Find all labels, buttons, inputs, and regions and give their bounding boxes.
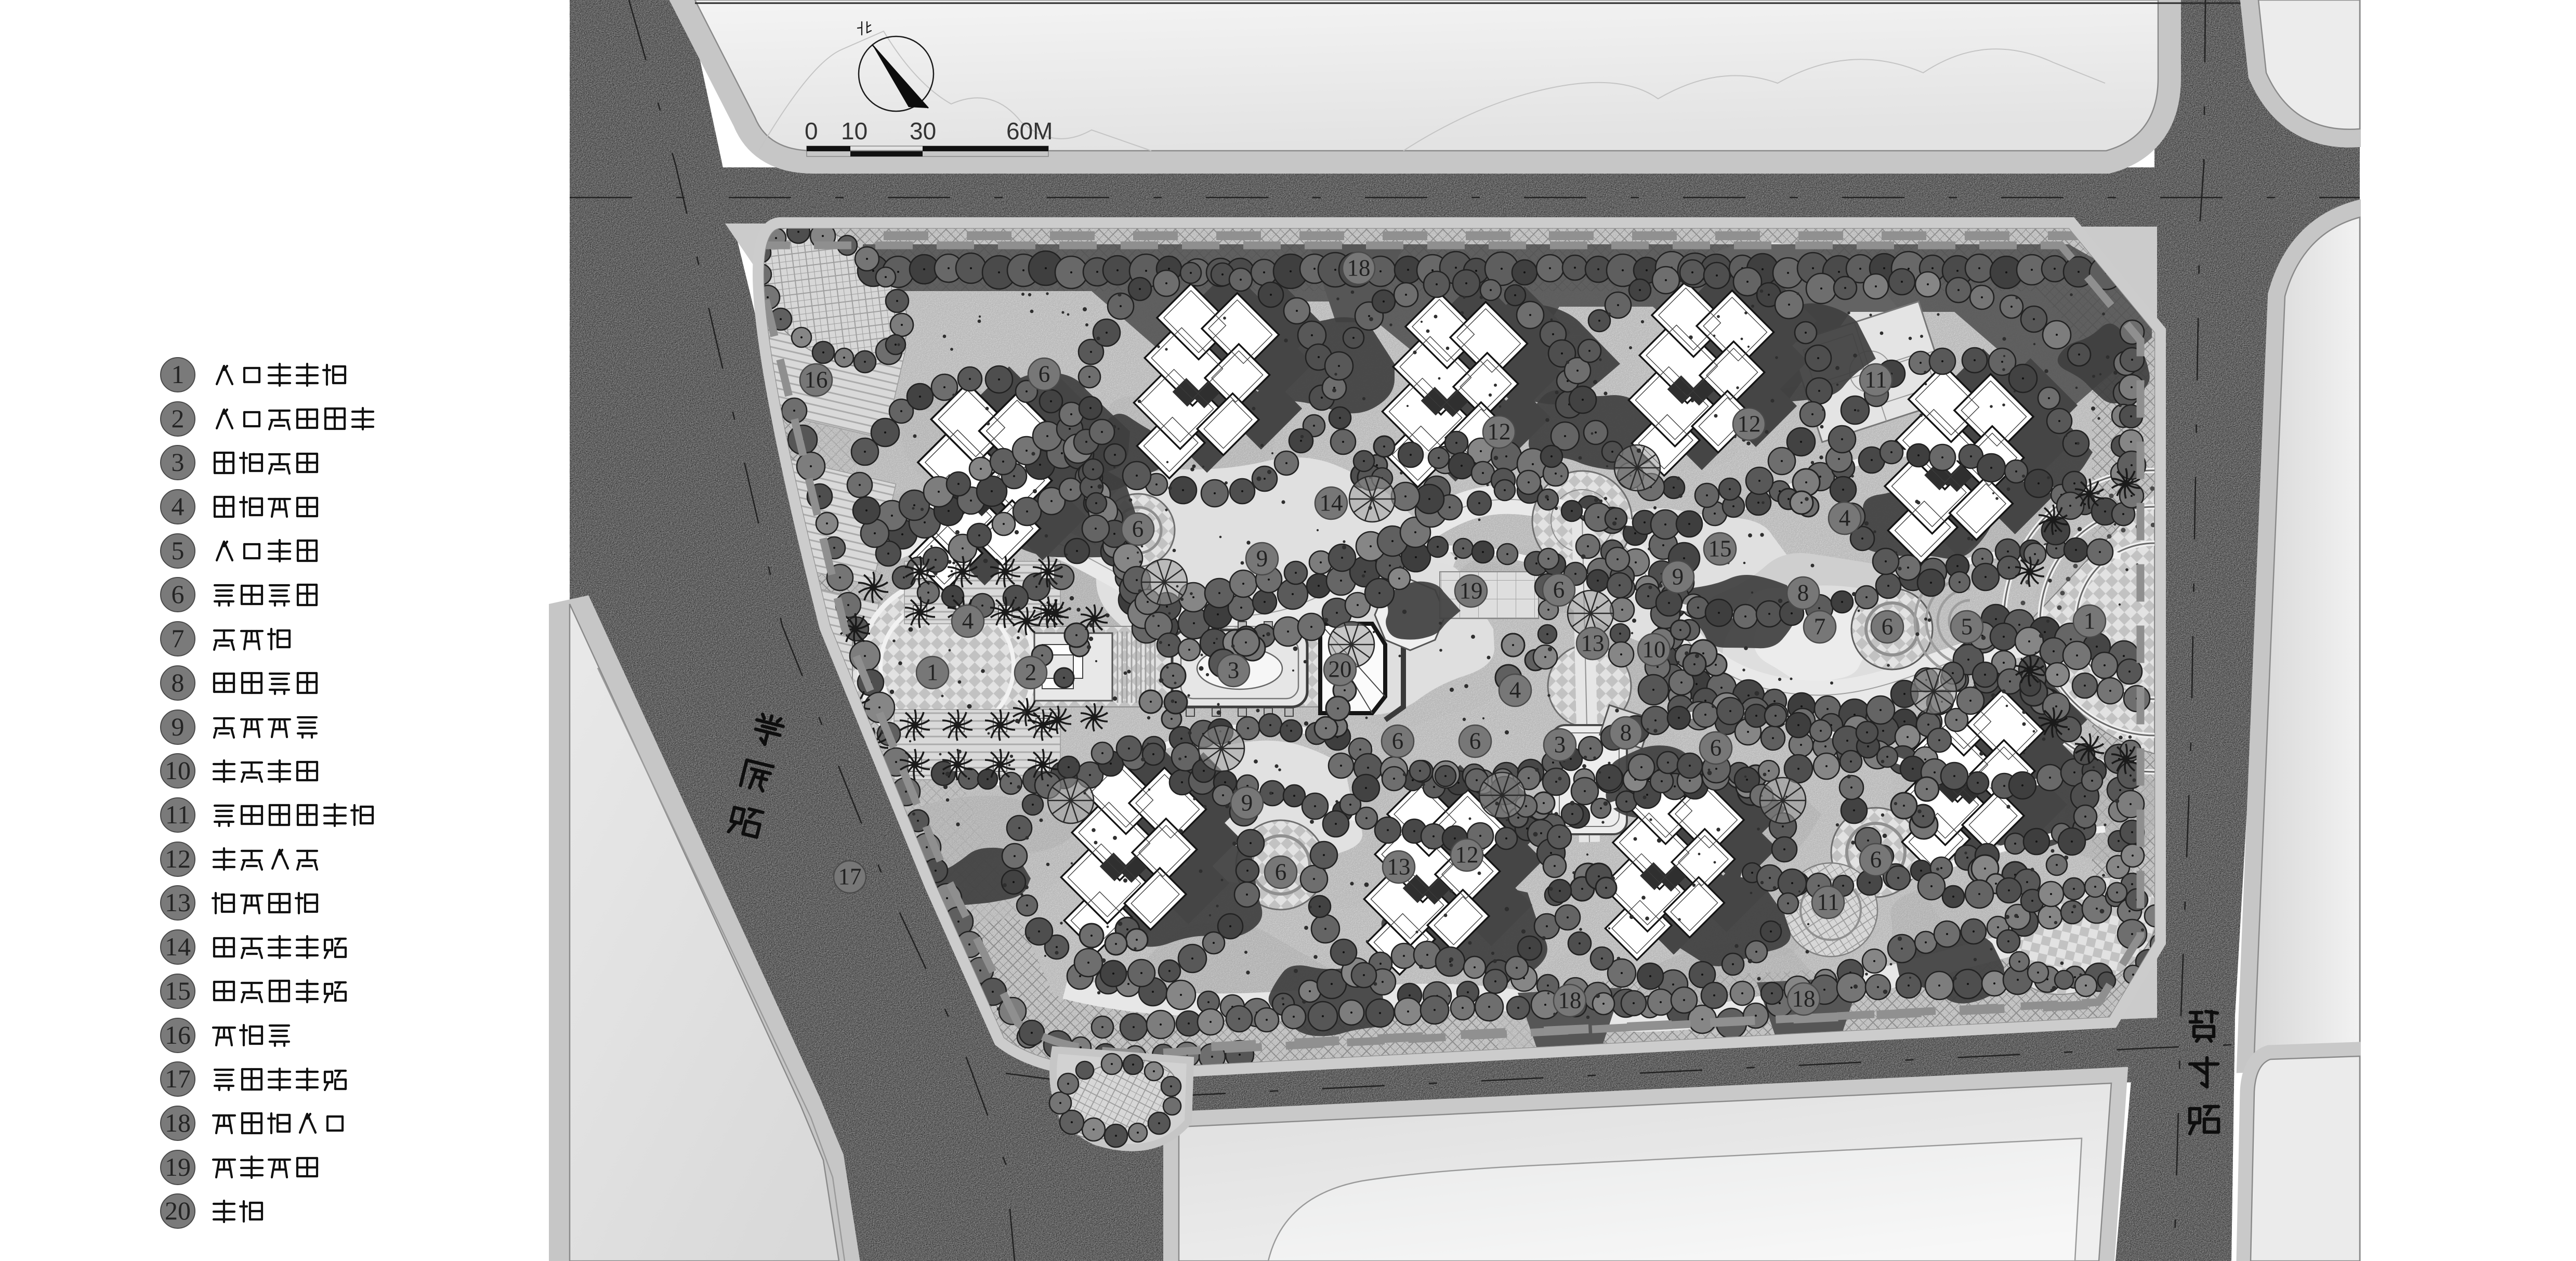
svg-text:9: 9 [172, 712, 185, 741]
svg-text:14: 14 [165, 932, 191, 961]
svg-text:16: 16 [165, 1020, 191, 1049]
svg-text:1: 1 [172, 360, 185, 389]
svg-text:2: 2 [172, 404, 185, 433]
svg-text:6: 6 [172, 580, 185, 609]
svg-text:12: 12 [165, 844, 191, 873]
svg-text:10: 10 [165, 756, 191, 785]
svg-text:17: 17 [165, 1064, 191, 1093]
svg-text:8: 8 [172, 668, 185, 697]
svg-text:5: 5 [172, 536, 185, 565]
svg-text:7: 7 [172, 624, 185, 653]
svg-text:13: 13 [165, 888, 191, 917]
svg-text:15: 15 [165, 976, 191, 1005]
svg-text:19: 19 [165, 1152, 191, 1181]
svg-text:20: 20 [165, 1196, 191, 1225]
svg-text:18: 18 [165, 1108, 191, 1137]
svg-text:11: 11 [165, 800, 190, 829]
svg-text:4: 4 [172, 492, 185, 521]
svg-text:3: 3 [172, 448, 185, 477]
